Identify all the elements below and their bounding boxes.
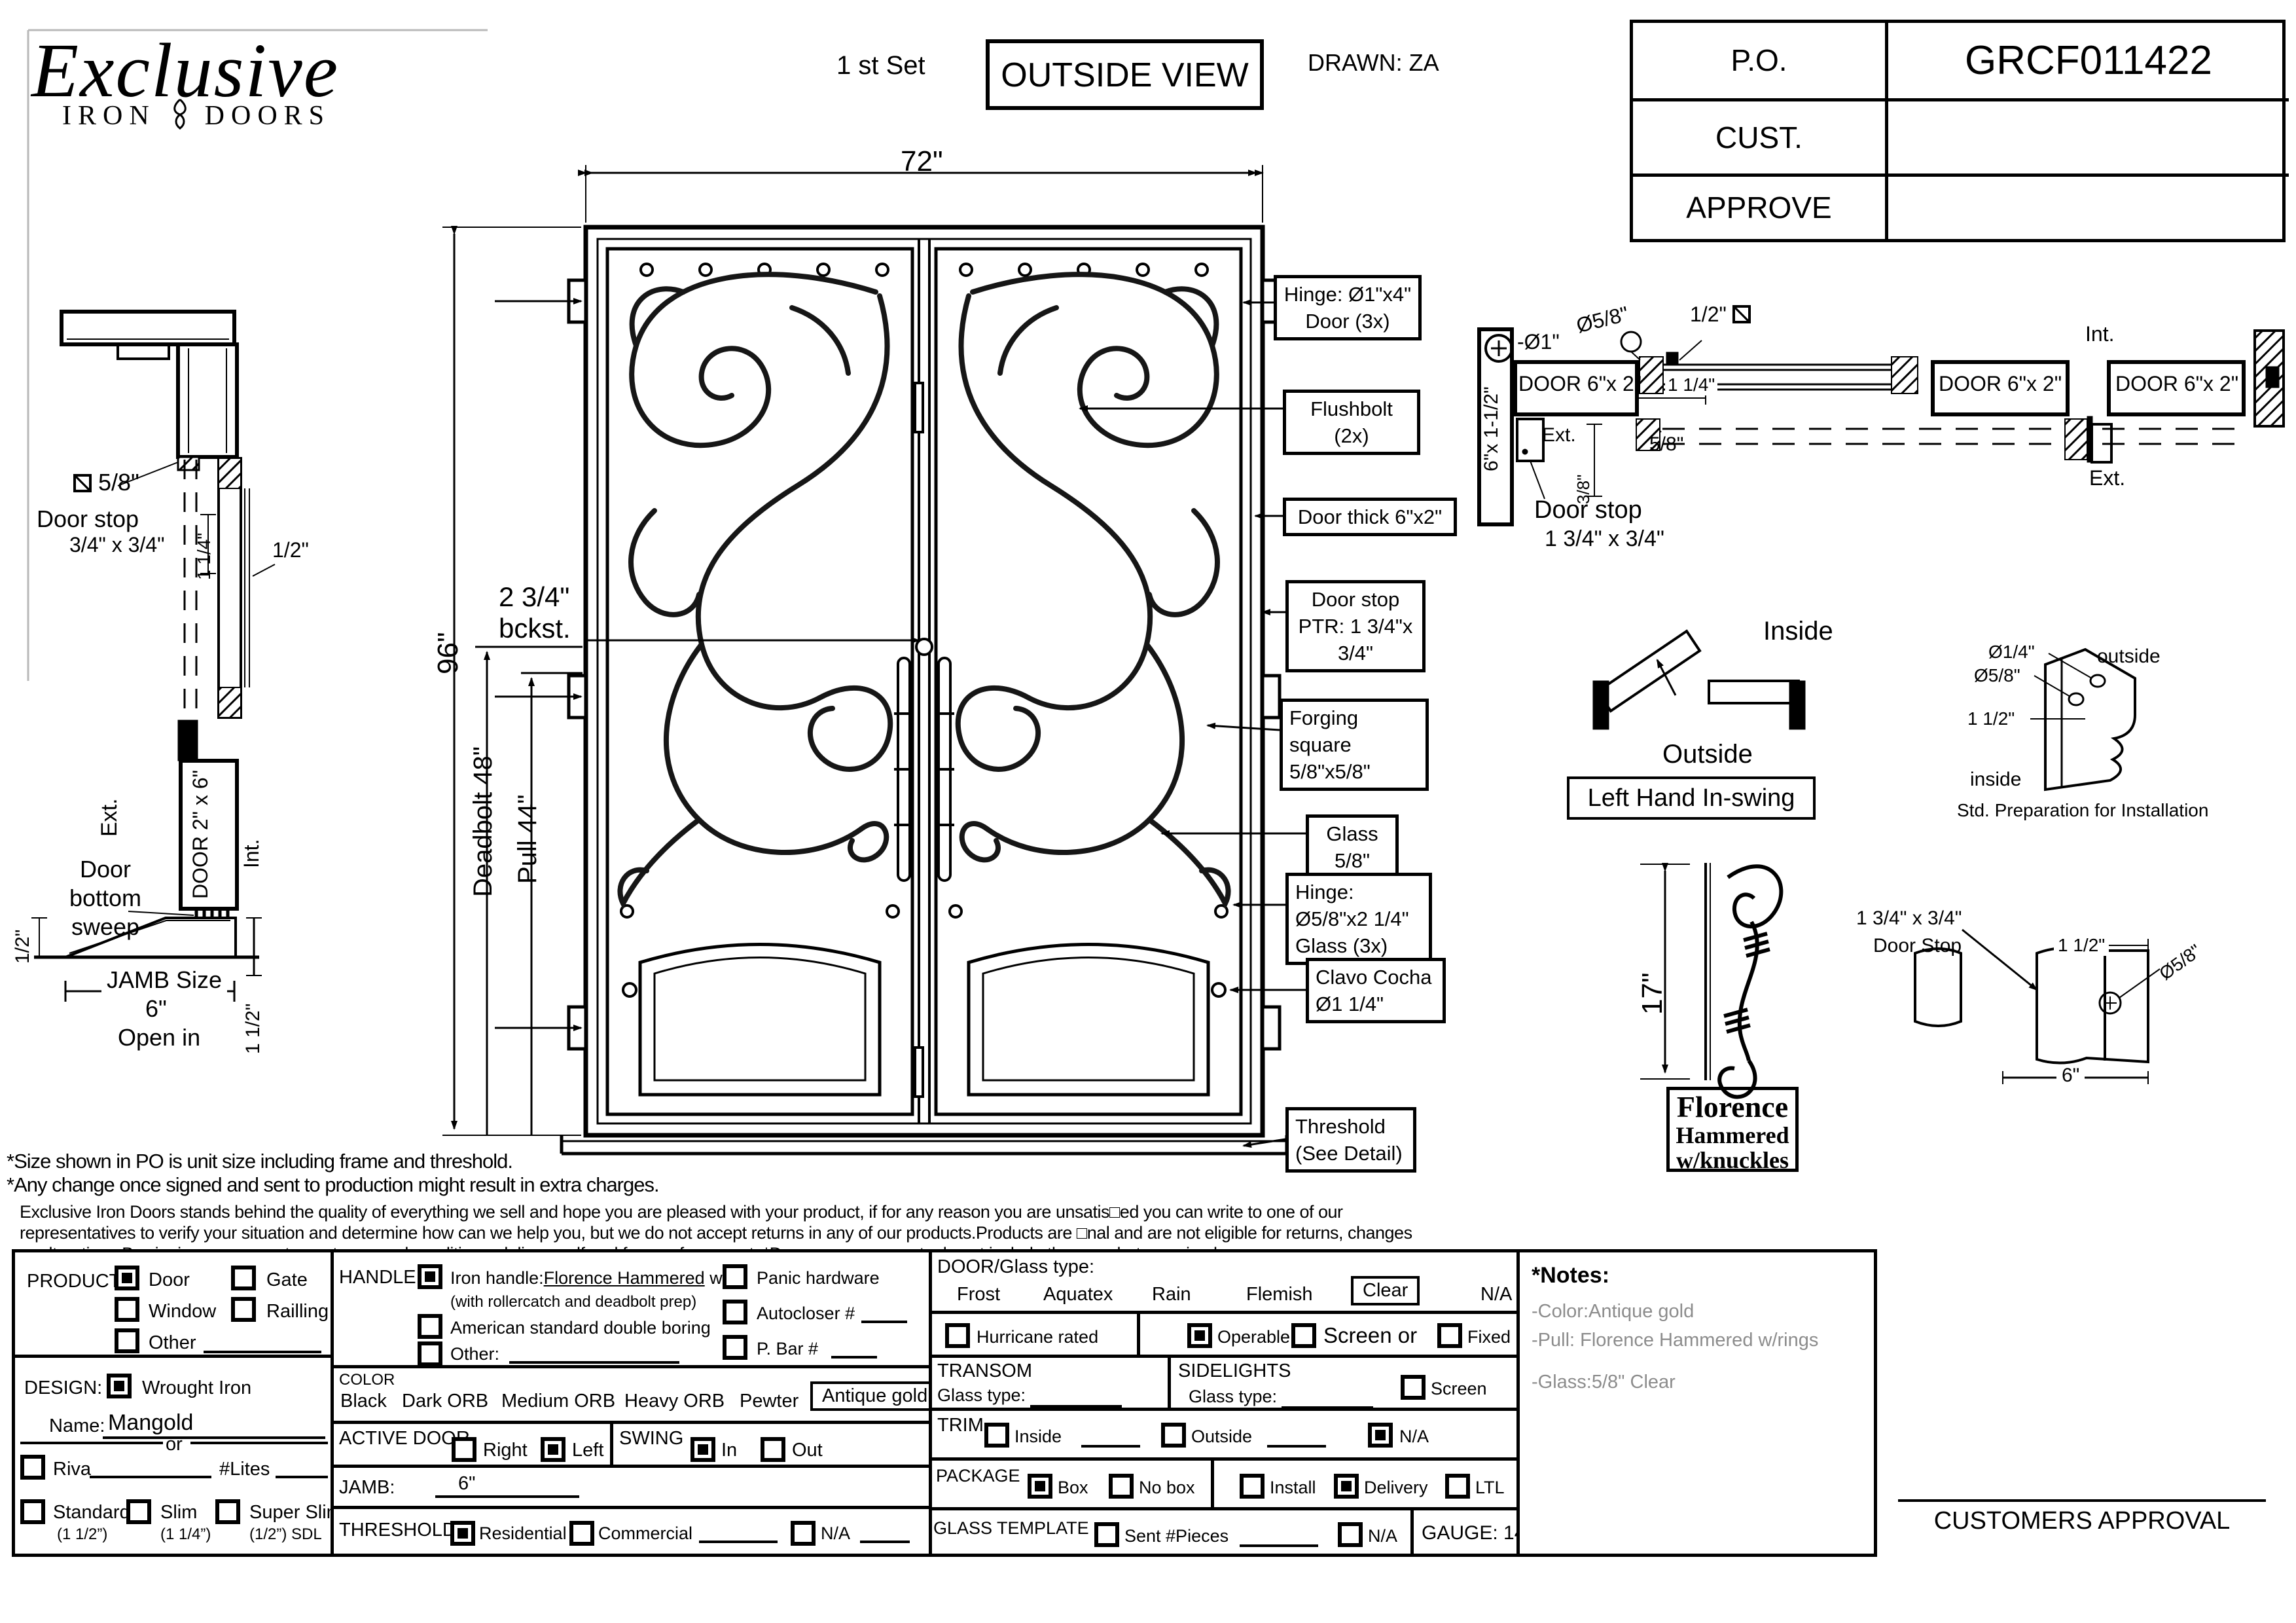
checkbox-design-wrought-iron[interactable] bbox=[107, 1374, 132, 1398]
super-slim-size: (1/2”) SDL bbox=[249, 1525, 322, 1544]
square-symbol-icon bbox=[73, 474, 92, 492]
left-sweep: Doorbottomsweep bbox=[63, 855, 148, 941]
transom-label: TRANSOM bbox=[937, 1360, 1032, 1382]
hurricane-operable-section: Hurricane rated Operable Screen or Fixed bbox=[932, 1314, 1516, 1358]
trim-label: TRIM bbox=[937, 1415, 984, 1436]
checkbox-iron-handle[interactable] bbox=[418, 1264, 442, 1289]
swing-inside-label: Inside bbox=[1763, 617, 1833, 646]
transom-divider bbox=[1168, 1358, 1171, 1408]
slim-label: Slim bbox=[160, 1502, 197, 1523]
handle-other-input[interactable] bbox=[509, 1343, 679, 1364]
checkbox-active-left[interactable] bbox=[541, 1437, 565, 1462]
checkbox-slim[interactable] bbox=[126, 1499, 151, 1524]
form-col-glass: DOOR/Glass type: Frost Aquatex Rain Flem… bbox=[932, 1249, 1520, 1557]
color-pewter[interactable]: Pewter bbox=[740, 1391, 798, 1412]
handle-section: HANDLE Iron handle:Florence Hammered w/r… bbox=[334, 1252, 929, 1368]
left-door-stop: Door stop bbox=[37, 505, 139, 533]
head-ext2: Ext. bbox=[2089, 466, 2125, 490]
active-swing-divider bbox=[610, 1424, 613, 1465]
prep-d58: Ø5/8" bbox=[1974, 665, 2020, 686]
prep-inside: inside bbox=[1970, 769, 2021, 791]
checkbox-screen-or[interactable] bbox=[1291, 1323, 1316, 1348]
handle-style-line3: w/knuckles bbox=[1670, 1148, 1795, 1173]
pull-dim-label: Pull 44" bbox=[513, 740, 543, 884]
approve-value[interactable] bbox=[1888, 177, 2289, 242]
logo-doors: DOORS bbox=[205, 101, 331, 131]
sidelights-glass-type-input[interactable] bbox=[1282, 1388, 1373, 1409]
trim-outside-label: Outside bbox=[1191, 1427, 1252, 1447]
note-pull: -Pull: Florence Hammered w/rings bbox=[1532, 1330, 1818, 1351]
color-heavy-orb[interactable]: Heavy ORB bbox=[624, 1391, 725, 1412]
callout-glass: Glass 5/8" bbox=[1306, 814, 1399, 880]
handle-style-box: Florence Hammered w/knuckles bbox=[1666, 1087, 1799, 1172]
po-label: P.O. bbox=[1633, 23, 1888, 101]
notes-title: *Notes: bbox=[1532, 1263, 1609, 1288]
left-dim-12b: 1/2" bbox=[12, 905, 34, 964]
jamb-input[interactable] bbox=[435, 1477, 579, 1498]
glass-frost[interactable]: Frost bbox=[957, 1284, 1000, 1305]
left-dim-12: 1/2" bbox=[272, 538, 309, 562]
design-name-label: Name: bbox=[49, 1415, 105, 1437]
standard-size: (1 1/2”) bbox=[57, 1525, 107, 1544]
checkbox-threshold-commercial[interactable] bbox=[569, 1521, 594, 1546]
trim-inside-input[interactable] bbox=[1081, 1427, 1140, 1448]
threshold-section: THRESHOLD Residential Commercial N/A bbox=[334, 1509, 929, 1557]
door-spec-sheet: Exclusive IRON DOORS 1 st Set OUTSIDE VI… bbox=[0, 0, 2296, 1623]
checkbox-product-gate[interactable] bbox=[231, 1266, 256, 1290]
left-door-size: DOOR 2" x 6" bbox=[188, 767, 213, 902]
product-other-label: Other bbox=[149, 1332, 196, 1354]
handle-label: HANDLE bbox=[339, 1267, 416, 1288]
checkbox-product-railling[interactable] bbox=[231, 1297, 256, 1322]
outside-view-box: OUTSIDE VIEW bbox=[986, 39, 1264, 110]
prep-detail-linework bbox=[2030, 649, 2135, 790]
form-col-notes: *Notes: -Color:Antique gold -Pull: Flore… bbox=[1520, 1249, 1877, 1557]
title-block: P.O. GRCF011422 CUST. APPROVE bbox=[1630, 20, 2286, 242]
checkbox-package-ltl[interactable] bbox=[1445, 1474, 1470, 1499]
package-delivery-label: Delivery bbox=[1364, 1478, 1428, 1498]
checkbox-super-slim[interactable] bbox=[215, 1499, 240, 1524]
design-or: or bbox=[166, 1434, 183, 1455]
note-color: -Color:Antique gold bbox=[1532, 1301, 1694, 1322]
checkbox-active-right[interactable] bbox=[452, 1437, 476, 1462]
sidelights-label: SIDELIGHTS bbox=[1178, 1360, 1291, 1382]
sidelights-screen-label: Screen bbox=[1431, 1379, 1487, 1399]
callout-door-thick: Door thick 6"x2" bbox=[1283, 498, 1457, 536]
head-door1: DOOR 6"x 2" bbox=[1518, 372, 1634, 396]
left-int: Int. bbox=[240, 809, 264, 868]
threshold-lines bbox=[562, 1135, 1287, 1154]
transom-sidelights-section: TRANSOM Glass type: SIDELIGHTS Glass typ… bbox=[932, 1358, 1516, 1411]
callout-flushbolt: Flushbolt (2x) bbox=[1283, 390, 1420, 455]
active-left-label: Left bbox=[572, 1440, 603, 1461]
product-door-label: Door bbox=[149, 1269, 190, 1291]
slim-size: (1 1/4”) bbox=[160, 1525, 211, 1544]
door-hardware bbox=[894, 383, 954, 1097]
disclaimer-para1: Exclusive Iron Doors stands behind the q… bbox=[20, 1202, 1343, 1222]
operable-label: Operable bbox=[1217, 1327, 1290, 1347]
glass-type-label: DOOR/Glass type: bbox=[937, 1256, 1094, 1278]
handle-style-name: Florence bbox=[1670, 1091, 1795, 1123]
checkbox-swing-in[interactable] bbox=[691, 1437, 715, 1462]
checkbox-template-sent[interactable] bbox=[1094, 1522, 1119, 1547]
checkbox-threshold-na[interactable] bbox=[791, 1521, 816, 1546]
product-window-label: Window bbox=[149, 1301, 216, 1322]
active-swing-section: ACTIVE DOOR Right Left SWING In Out bbox=[334, 1424, 929, 1468]
glass-template-label: GLASS TEMPLATE bbox=[933, 1518, 1089, 1539]
backset-dim-label: 2 3/4"bckst. bbox=[499, 581, 571, 644]
swing-outside-label: Outside bbox=[1662, 740, 1753, 769]
package-divider bbox=[1211, 1461, 1214, 1507]
swing-out-label: Out bbox=[792, 1440, 823, 1461]
checkbox-template-na[interactable] bbox=[1338, 1522, 1363, 1547]
color-section: COLOR Black Dark ORB Medium ORB Heavy OR… bbox=[334, 1368, 929, 1424]
or-divider-right bbox=[190, 1442, 328, 1444]
american-boring-label: American standard double boring bbox=[450, 1318, 711, 1338]
head-dia58: Ø5/8" bbox=[1574, 302, 1631, 338]
color-black[interactable]: Black bbox=[340, 1391, 387, 1412]
stopdetail-size: 1 3/4" x 3/4" bbox=[1856, 907, 1962, 930]
width-dim-label: 72" bbox=[901, 145, 943, 178]
callout-hinge-glass: Hinge: Ø5/8"x2 1/4"Glass (3x) bbox=[1285, 873, 1432, 965]
stopdetail-d58: Ø5/8" bbox=[2155, 940, 2205, 984]
handle-dim-17: 17" bbox=[1636, 943, 1669, 1015]
glass-type-section: DOOR/Glass type: Frost Aquatex Rain Flem… bbox=[932, 1252, 1516, 1314]
glass-clear-selected[interactable]: Clear bbox=[1351, 1276, 1420, 1305]
checkbox-threshold-residential[interactable] bbox=[450, 1521, 475, 1546]
left-dim-112: 1 1/2" bbox=[242, 962, 264, 1054]
disclaimer-line1: *Size shown in PO is unit size including… bbox=[7, 1150, 512, 1173]
left-ext: Ext. bbox=[97, 771, 122, 837]
stopdetail-d112: 1 1/2" bbox=[2054, 935, 2109, 956]
threshold-na-label: N/A bbox=[821, 1523, 850, 1544]
jamb-label: JAMB: bbox=[339, 1477, 395, 1499]
color-antique-gold-selected[interactable]: Antique gold bbox=[810, 1381, 939, 1411]
height-dim-label: 96" bbox=[432, 589, 465, 674]
head-int: Int. bbox=[2085, 322, 2114, 346]
head-door2: DOOR 6"x 2" bbox=[1935, 372, 2066, 396]
checkbox-american-boring[interactable] bbox=[418, 1314, 442, 1339]
template-sent-label: Sent #Pieces bbox=[1124, 1526, 1229, 1546]
checkbox-package-nobox[interactable] bbox=[1109, 1474, 1134, 1499]
lites-input[interactable] bbox=[276, 1457, 328, 1478]
package-install-label: Install bbox=[1270, 1478, 1316, 1498]
trim-na-label: N/A bbox=[1399, 1427, 1429, 1447]
head-door-stop-dim: 1 3/4" x 3/4" bbox=[1545, 526, 1664, 552]
square-symbol-icon bbox=[1732, 305, 1751, 323]
template-sent-input[interactable] bbox=[1240, 1526, 1318, 1547]
checkbox-swing-out[interactable] bbox=[761, 1437, 785, 1462]
prep-d112: 1 1/2" bbox=[1967, 708, 2015, 729]
super-slim-label: Super Slim bbox=[249, 1502, 342, 1523]
checkbox-product-window[interactable] bbox=[115, 1297, 139, 1322]
glass-template-section: GLASS TEMPLATE Sent #Pieces N/A GAUGE: 1… bbox=[932, 1510, 1516, 1557]
callout-clavo-cocha: Clavo CochaØ1 1/4" bbox=[1306, 958, 1446, 1023]
gauge-value[interactable]: GAUGE: 14 bbox=[1422, 1522, 1525, 1544]
product-other-input[interactable] bbox=[204, 1332, 321, 1353]
checkbox-package-install[interactable] bbox=[1240, 1474, 1265, 1499]
prep-d14: Ø1/4" bbox=[1988, 642, 2035, 663]
deadbolt-dim-label: Deadbolt 48" bbox=[469, 714, 498, 897]
form-col-handle: HANDLE Iron handle:Florence Hammered w/r… bbox=[334, 1249, 932, 1557]
disclaimer-para2: representatives to verify your situation… bbox=[20, 1223, 1412, 1243]
package-box-label: Box bbox=[1058, 1478, 1088, 1498]
left-open-in: Open in bbox=[118, 1024, 200, 1051]
prep-outside: outside bbox=[2097, 646, 2161, 668]
head-dim58: 5/8" bbox=[1649, 433, 1683, 456]
active-door-label: ACTIVE DOOR bbox=[339, 1428, 470, 1450]
pbar-input[interactable] bbox=[831, 1338, 877, 1359]
package-ltl-label: LTL bbox=[1475, 1478, 1505, 1498]
head-dia1: -Ø1" bbox=[1517, 330, 1560, 354]
trim-section: TRIM Inside Outside N/A bbox=[932, 1411, 1516, 1461]
logo-subtitle: IRON DOORS bbox=[62, 98, 331, 132]
approve-label: APPROVE bbox=[1633, 177, 1888, 242]
callout-door-stop-ptr: Door stopPTR: 1 3/4"x 3/4" bbox=[1285, 580, 1426, 672]
gauge-divider bbox=[1410, 1510, 1414, 1554]
left-stop-size: 5/8" bbox=[73, 469, 139, 496]
customers-approval-label[interactable]: CUSTOMERS APPROVAL bbox=[1898, 1507, 2266, 1535]
checkbox-autocloser[interactable] bbox=[723, 1300, 747, 1324]
bottom-arch-panels bbox=[640, 945, 1208, 1095]
trim-outside-input[interactable] bbox=[1267, 1427, 1326, 1448]
or-divider-left bbox=[20, 1442, 163, 1444]
riva-input[interactable] bbox=[90, 1457, 211, 1478]
callout-leaders bbox=[1080, 302, 1306, 1146]
threshold-label: THRESHOLD bbox=[339, 1520, 456, 1541]
iron-handle-label: Iron handle:Florence Hammered w/r bbox=[450, 1268, 733, 1288]
transom-glass-type-input[interactable] bbox=[1030, 1387, 1122, 1408]
design-label: DESIGN: bbox=[24, 1377, 102, 1399]
product-railling-label: Railling bbox=[266, 1301, 329, 1322]
clavo-circles bbox=[621, 264, 1227, 996]
checkbox-trim-inside[interactable] bbox=[984, 1423, 1009, 1448]
swing-type-box: Left Hand In-swing bbox=[1567, 776, 1816, 820]
set-label: 1 st Set bbox=[836, 51, 925, 81]
checkbox-hurricane[interactable] bbox=[945, 1323, 970, 1348]
hurricane-divider bbox=[1137, 1314, 1140, 1355]
pbar-label: P. Bar # bbox=[757, 1339, 818, 1359]
checkbox-product-door[interactable] bbox=[115, 1266, 139, 1290]
threshold-commercial-input[interactable] bbox=[699, 1522, 778, 1543]
checkbox-fixed[interactable] bbox=[1437, 1323, 1462, 1348]
screen-or-label: Screen or bbox=[1323, 1323, 1417, 1348]
product-label: PRODUCT: bbox=[27, 1271, 124, 1292]
checkbox-riva[interactable] bbox=[20, 1455, 45, 1480]
fleur-icon bbox=[169, 98, 191, 130]
stopdetail-d6: 6" bbox=[2056, 1065, 2085, 1087]
threshold-residential-label: Residential bbox=[479, 1523, 567, 1544]
threshold-commercial-label: Commercial bbox=[598, 1523, 692, 1544]
package-section: PACKAGE Box No box Install Delivery LTL bbox=[932, 1461, 1516, 1510]
stopdetail-label: Door Stop bbox=[1873, 935, 1962, 957]
jamb-section: JAMB: 6" bbox=[334, 1468, 929, 1509]
scrollwork-right-leaf bbox=[958, 274, 1229, 903]
transom-glass-type-label: Glass type: bbox=[937, 1385, 1026, 1406]
callout-forging-square: Forging square5/8"x5/8" bbox=[1280, 699, 1429, 791]
door-elevation bbox=[562, 227, 1287, 1154]
dimension-lines bbox=[442, 165, 1263, 1135]
template-na-label: N/A bbox=[1368, 1526, 1397, 1546]
swing-in-label: In bbox=[721, 1440, 737, 1461]
checkbox-panic-hardware[interactable] bbox=[723, 1264, 747, 1289]
head-jamb-size: 6"x 1-1/2" bbox=[1480, 354, 1511, 504]
callout-threshold: Threshold(See Detail) bbox=[1285, 1107, 1416, 1173]
product-gate-label: Gate bbox=[266, 1269, 308, 1291]
package-nobox-label: No box bbox=[1139, 1478, 1195, 1498]
head-ext1: Ext. bbox=[1542, 424, 1576, 447]
threshold-na-input[interactable] bbox=[860, 1522, 910, 1543]
design-section: DESIGN: Wrought Iron Name: Mangold or Ri… bbox=[15, 1358, 331, 1557]
checkbox-trim-na[interactable] bbox=[1368, 1423, 1393, 1448]
color-label: COLOR bbox=[339, 1371, 395, 1389]
autocloser-input[interactable] bbox=[861, 1302, 907, 1323]
cust-value[interactable] bbox=[1888, 101, 2289, 177]
disclaimer-line2: *Any change once signed and sent to prod… bbox=[7, 1173, 659, 1197]
handle-other-label: Other: bbox=[450, 1344, 499, 1364]
autocloser-label: Autocloser # bbox=[757, 1304, 855, 1324]
head-door-stop: Door stop bbox=[1534, 496, 1642, 524]
color-dark-orb[interactable]: Dark ORB bbox=[402, 1391, 488, 1412]
note-glass: -Glass:5/8" Clear bbox=[1532, 1372, 1676, 1393]
glass-rain[interactable]: Rain bbox=[1152, 1284, 1191, 1305]
lites-label: #Lites bbox=[219, 1459, 270, 1480]
iron-handle-subnote: (with rollercatch and deadbolt prep) bbox=[450, 1293, 696, 1311]
scrollwork-left-leaf bbox=[620, 274, 890, 903]
left-jamb-6: 6" bbox=[140, 995, 172, 1023]
trim-inside-label: Inside bbox=[1014, 1427, 1062, 1447]
checkbox-operable[interactable] bbox=[1187, 1323, 1212, 1348]
glass-aquatex[interactable]: Aquatex bbox=[1043, 1284, 1113, 1305]
callout-hinge-door: Hinge: Ø1"x4"Door (3x) bbox=[1274, 275, 1422, 340]
glass-flemish[interactable]: Flemish bbox=[1246, 1284, 1313, 1305]
checkbox-pbar[interactable] bbox=[723, 1335, 747, 1360]
po-value[interactable]: GRCF011422 bbox=[1888, 23, 2289, 101]
color-medium-orb[interactable]: Medium ORB bbox=[501, 1391, 615, 1412]
checkbox-product-other[interactable] bbox=[115, 1328, 139, 1353]
head-half: 1/2" bbox=[1690, 302, 1751, 327]
panic-hardware-label: Panic hardware bbox=[757, 1268, 880, 1288]
hinges bbox=[569, 280, 1280, 1049]
fixed-label: Fixed bbox=[1467, 1327, 1511, 1347]
checkbox-standard[interactable] bbox=[20, 1499, 45, 1524]
checkbox-package-delivery[interactable] bbox=[1334, 1474, 1359, 1499]
cust-label: CUST. bbox=[1633, 101, 1888, 177]
product-section: PRODUCT: Door Gate Window Railling Other bbox=[15, 1252, 331, 1358]
design-wrought-label: Wrought Iron bbox=[142, 1377, 251, 1399]
left-jamb-size: JAMB Size bbox=[101, 966, 227, 994]
prep-caption: Std. Preparation for Installation bbox=[1957, 800, 2208, 821]
drawn-label: DRAWN: ZA bbox=[1308, 49, 1439, 77]
checkbox-handle-other[interactable] bbox=[418, 1341, 442, 1366]
package-label: PACKAGE bbox=[936, 1466, 1020, 1486]
head-dim114: 1 1/4" bbox=[1665, 374, 1717, 395]
standard-label: Standard bbox=[53, 1502, 130, 1523]
head-section-linework bbox=[1479, 329, 2284, 524]
checkbox-trim-outside[interactable] bbox=[1161, 1423, 1186, 1448]
hurricane-label: Hurricane rated bbox=[977, 1327, 1098, 1347]
active-right-label: Right bbox=[483, 1440, 528, 1461]
swing-label: SWING bbox=[619, 1428, 683, 1450]
left-stop-dim: 3/4" x 3/4" bbox=[69, 533, 164, 557]
head-door3: DOOR 6"x 2" bbox=[2111, 372, 2242, 396]
form-col-product-design: PRODUCT: Door Gate Window Railling Other… bbox=[12, 1249, 334, 1557]
glass-na[interactable]: N/A bbox=[1480, 1284, 1512, 1305]
left-dim-114: 1 1/4" bbox=[194, 515, 215, 580]
design-name-input[interactable] bbox=[103, 1418, 325, 1439]
checkbox-package-box[interactable] bbox=[1028, 1474, 1052, 1499]
sidelights-glass-type-label: Glass type: bbox=[1189, 1387, 1277, 1407]
checkbox-sidelights-screen[interactable] bbox=[1401, 1375, 1426, 1400]
riva-label: Riva bbox=[53, 1459, 91, 1480]
handle-style-line2: Hammered bbox=[1670, 1123, 1795, 1148]
logo-iron: IRON bbox=[62, 101, 156, 131]
